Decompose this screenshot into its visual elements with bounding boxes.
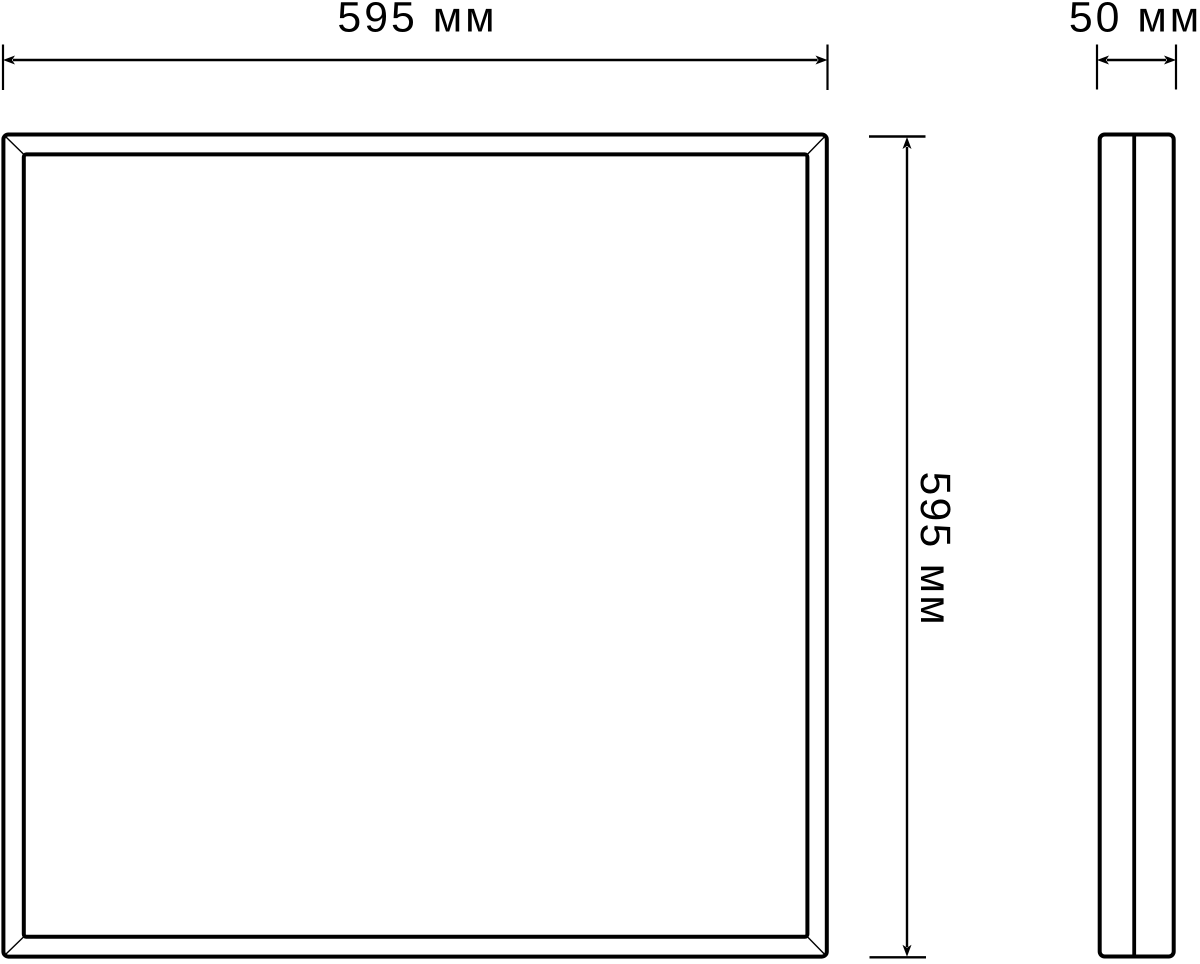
svg-text:595 мм: 595 мм xyxy=(337,0,497,42)
svg-text:595 мм: 595 мм xyxy=(911,472,959,627)
svg-text:50 мм: 50 мм xyxy=(1069,0,1200,42)
